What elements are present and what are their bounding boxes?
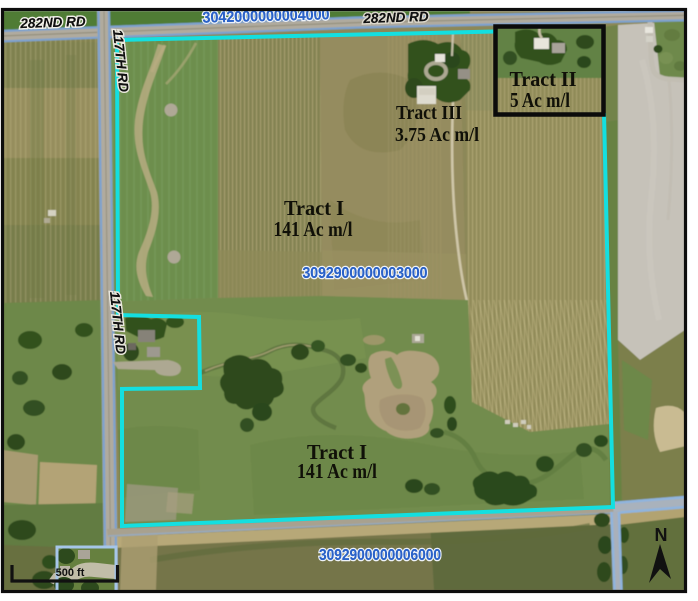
svg-text:Tract III: Tract III [396,102,462,124]
svg-text:282ND RD: 282ND RD [19,14,86,31]
svg-text:500 ft: 500 ft [56,567,85,579]
svg-text:3092900000006000: 3092900000006000 [319,547,441,564]
svg-text:141 Ac m/l: 141 Ac m/l [297,459,377,483]
svg-text:5 Ac m/l: 5 Ac m/l [510,88,570,112]
svg-text:282ND RD: 282ND RD [362,9,429,26]
svg-text:3092900000003000: 3092900000003000 [303,265,428,282]
svg-text:3.75 Ac m/l: 3.75 Ac m/l [395,124,479,146]
svg-text:141 Ac m/l: 141 Ac m/l [274,217,353,241]
svg-text:N: N [655,525,668,545]
